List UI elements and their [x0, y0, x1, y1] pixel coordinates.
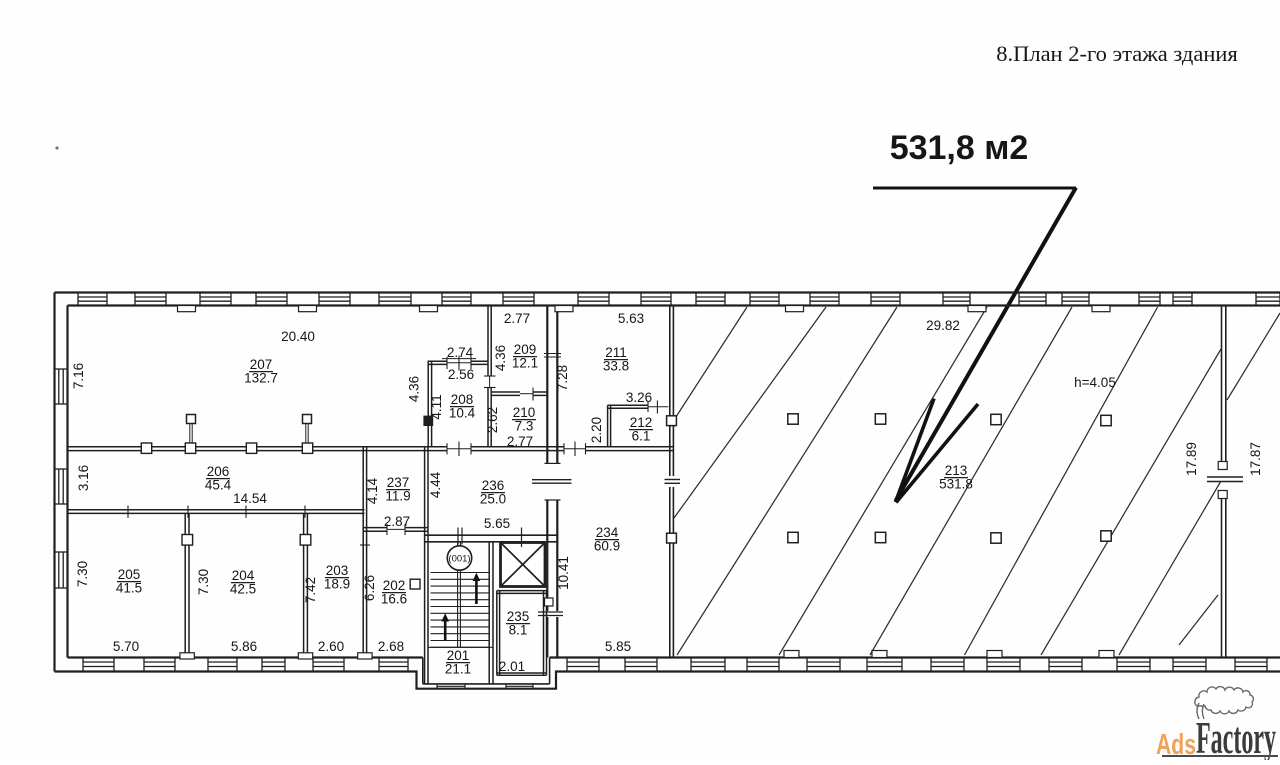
svg-text:21.1: 21.1 — [445, 662, 471, 677]
svg-text:60.9: 60.9 — [594, 539, 620, 554]
svg-text:4.44: 4.44 — [428, 471, 443, 498]
svg-text:4.11: 4.11 — [429, 394, 444, 419]
svg-text:2.68: 2.68 — [378, 639, 404, 654]
svg-text:h=4.05: h=4.05 — [1074, 375, 1116, 390]
svg-text:4.36: 4.36 — [407, 376, 422, 402]
svg-text:10.4: 10.4 — [449, 406, 476, 421]
svg-text:5.85: 5.85 — [605, 639, 631, 654]
svg-text:5.63: 5.63 — [618, 311, 644, 326]
svg-text:10.41: 10.41 — [556, 556, 571, 590]
svg-text:17.89: 17.89 — [1184, 442, 1199, 476]
svg-text:12.1: 12.1 — [512, 356, 538, 371]
svg-text:531,8 м2: 531,8 м2 — [890, 129, 1029, 167]
svg-text:8.1: 8.1 — [509, 623, 528, 638]
svg-text:5.65: 5.65 — [484, 516, 510, 531]
svg-text:41.5: 41.5 — [116, 581, 142, 596]
svg-text:6.26: 6.26 — [362, 575, 377, 601]
svg-text:7.3: 7.3 — [515, 419, 534, 434]
svg-text:2.20: 2.20 — [589, 417, 604, 443]
svg-text:Factory: Factory — [1196, 713, 1276, 760]
svg-text:4.36: 4.36 — [493, 345, 508, 371]
svg-text:2.56: 2.56 — [448, 367, 474, 382]
svg-text:2.77: 2.77 — [507, 434, 533, 449]
svg-text:7.30: 7.30 — [75, 561, 90, 587]
svg-text:132.7: 132.7 — [244, 371, 278, 386]
svg-text:33.8: 33.8 — [603, 359, 629, 374]
svg-text:25.0: 25.0 — [480, 492, 506, 507]
svg-text:4.14: 4.14 — [365, 477, 380, 504]
svg-text:14.54: 14.54 — [233, 491, 267, 506]
svg-text:11.9: 11.9 — [385, 489, 410, 504]
svg-text:531.8: 531.8 — [939, 477, 973, 492]
svg-text:7.42: 7.42 — [303, 577, 318, 603]
svg-text:17.87: 17.87 — [1248, 442, 1263, 476]
svg-text:20.40: 20.40 — [281, 329, 315, 344]
svg-text:45.4: 45.4 — [205, 478, 232, 493]
svg-text:2.87: 2.87 — [384, 514, 410, 529]
svg-text:5.70: 5.70 — [113, 639, 139, 654]
svg-text:7.16: 7.16 — [71, 363, 86, 389]
svg-text:3.26: 3.26 — [626, 390, 652, 405]
svg-text:2.60: 2.60 — [318, 639, 344, 654]
svg-text:2.74: 2.74 — [447, 345, 474, 360]
svg-text:29.82: 29.82 — [926, 318, 960, 333]
svg-text:18.9: 18.9 — [324, 577, 350, 592]
svg-text:8.План 2-го этажа здания: 8.План 2-го этажа здания — [996, 41, 1238, 66]
svg-text:(001): (001) — [448, 554, 470, 565]
svg-text:7.28: 7.28 — [555, 365, 570, 391]
svg-text:3.16: 3.16 — [76, 465, 91, 491]
svg-text:42.5: 42.5 — [230, 582, 256, 597]
svg-text:2.62: 2.62 — [485, 407, 500, 433]
svg-text:2.01: 2.01 — [499, 659, 525, 674]
svg-text:5.86: 5.86 — [231, 639, 257, 654]
svg-text:2.77: 2.77 — [504, 311, 530, 326]
svg-text:6.1: 6.1 — [632, 429, 651, 444]
svg-text:7.30: 7.30 — [196, 569, 211, 595]
svg-text:16.6: 16.6 — [381, 592, 407, 607]
